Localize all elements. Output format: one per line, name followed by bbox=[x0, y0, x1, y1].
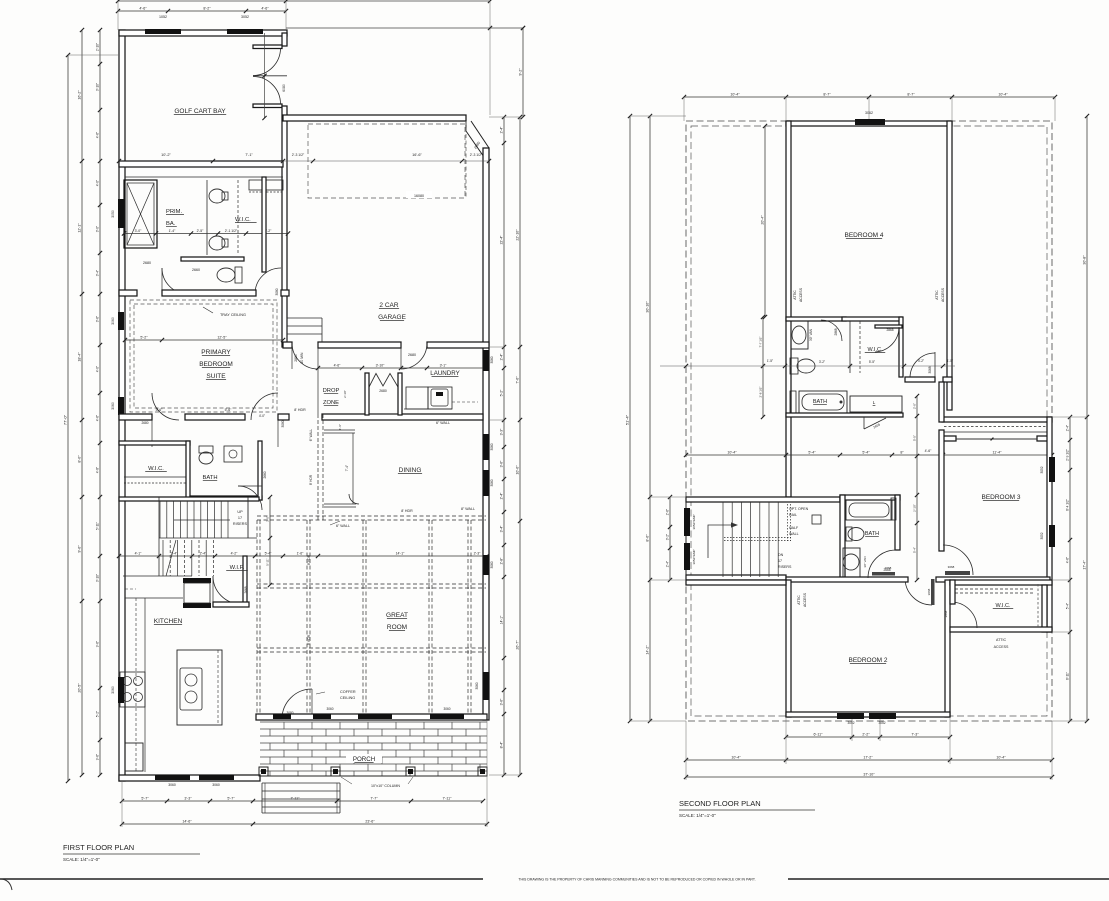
svg-text:10'-2": 10'-2" bbox=[161, 153, 171, 157]
svg-text:8' HDR: 8' HDR bbox=[401, 509, 413, 513]
svg-text:26'-7": 26'-7" bbox=[516, 640, 520, 650]
svg-text:22'-4": 22'-4" bbox=[500, 235, 504, 244]
svg-text:7'-11": 7'-11" bbox=[291, 797, 301, 801]
svg-text:KITCHEN: KITCHEN bbox=[154, 618, 183, 625]
svg-text:3080: 3080 bbox=[281, 420, 285, 427]
svg-text:30'-10": 30'-10" bbox=[646, 301, 650, 313]
svg-text:16080: 16080 bbox=[414, 194, 424, 198]
svg-text:3'-2": 3'-2" bbox=[666, 534, 670, 540]
svg-text:3050: 3050 bbox=[111, 210, 115, 218]
svg-text:W.I.C.: W.I.C. bbox=[148, 466, 164, 472]
svg-text:3080: 3080 bbox=[275, 288, 279, 295]
svg-text:3052: 3052 bbox=[847, 721, 854, 725]
svg-text:W.I.C.: W.I.C. bbox=[996, 603, 1011, 609]
svg-text:3'-3": 3'-3" bbox=[500, 428, 504, 436]
svg-text:4'-6": 4'-6" bbox=[96, 132, 100, 138]
svg-text:ACCESS: ACCESS bbox=[994, 645, 1009, 649]
svg-text:5'-5": 5'-5" bbox=[869, 360, 875, 364]
svg-text:DINING: DINING bbox=[399, 467, 422, 474]
svg-text:RISERS: RISERS bbox=[778, 565, 792, 569]
svg-text:5'-4": 5'-4" bbox=[265, 552, 273, 556]
svg-text:37'-10": 37'-10" bbox=[863, 773, 875, 777]
svg-text:GARAGE: GARAGE bbox=[378, 314, 406, 321]
svg-text:7'-6": 7'-6" bbox=[516, 376, 520, 384]
svg-text:8' HDR: 8' HDR bbox=[309, 474, 313, 485]
svg-text:10'-4": 10'-4" bbox=[731, 756, 741, 760]
svg-text:6'-11": 6'-11" bbox=[814, 733, 824, 737]
svg-text:30" VAN: 30" VAN bbox=[809, 328, 813, 341]
svg-text:3052TEMP: 3052TEMP bbox=[692, 514, 696, 529]
svg-text:8'-4 1/2": 8'-4 1/2" bbox=[1066, 499, 1070, 511]
svg-text:2'-8": 2'-8" bbox=[500, 557, 504, 565]
svg-text:5'-2": 5'-2" bbox=[500, 389, 504, 397]
svg-text:2660: 2660 bbox=[192, 268, 200, 272]
svg-text:ATTIC: ATTIC bbox=[793, 290, 797, 300]
svg-text:WALL: WALL bbox=[789, 532, 799, 536]
svg-text:9'-6": 9'-6" bbox=[96, 754, 100, 760]
svg-text:ATTIC: ATTIC bbox=[797, 595, 801, 605]
svg-text:8'-4": 8'-4" bbox=[500, 741, 504, 749]
svg-text:PRIM.: PRIM. bbox=[166, 209, 182, 215]
svg-text:2680: 2680 bbox=[141, 421, 148, 425]
svg-text:UP: UP bbox=[237, 510, 243, 514]
svg-text:BA.: BA. bbox=[166, 221, 176, 227]
svg-text:SUITE: SUITE bbox=[206, 373, 226, 380]
svg-text:GREAT: GREAT bbox=[386, 612, 408, 619]
svg-text:17: 17 bbox=[238, 516, 242, 520]
svg-text:3060: 3060 bbox=[212, 783, 220, 787]
svg-text:BATH: BATH bbox=[202, 475, 217, 481]
svg-text:3052: 3052 bbox=[1040, 466, 1044, 473]
svg-text:14'-6": 14'-6" bbox=[182, 820, 192, 824]
svg-text:10'-4": 10'-4" bbox=[996, 756, 1006, 760]
svg-text:4'-1": 4'-1" bbox=[135, 552, 143, 556]
svg-text:ACCESS: ACCESS bbox=[803, 592, 807, 607]
svg-text:8' HDR: 8' HDR bbox=[307, 634, 311, 645]
svg-text:23'-6": 23'-6" bbox=[365, 820, 375, 824]
svg-text:DROP: DROP bbox=[323, 388, 340, 394]
svg-text:4'-6": 4'-6" bbox=[261, 7, 269, 11]
svg-text:4'-0": 4'-0" bbox=[96, 366, 100, 372]
svg-text:3052: 3052 bbox=[878, 721, 885, 725]
svg-text:2'-4": 2'-4" bbox=[500, 353, 504, 361]
svg-text:7'-1": 7'-1" bbox=[245, 153, 253, 157]
svg-text:7'-7 1/2": 7'-7 1/2" bbox=[759, 337, 763, 348]
svg-text:3'-0": 3'-0" bbox=[135, 229, 143, 233]
svg-text:3068: 3068 bbox=[927, 588, 931, 595]
svg-text:5'-4": 5'-4" bbox=[862, 451, 870, 455]
svg-text:5'-11": 5'-11" bbox=[96, 522, 100, 530]
svg-text:3'-4": 3'-4" bbox=[500, 525, 504, 533]
svg-text:ACCESS: ACCESS bbox=[799, 287, 803, 302]
svg-text:10'-4": 10'-4" bbox=[730, 93, 740, 97]
svg-text:17'-2": 17'-2" bbox=[863, 756, 873, 760]
svg-text:12'-5": 12'-5" bbox=[217, 336, 227, 340]
svg-text:2680: 2680 bbox=[408, 353, 416, 357]
svg-text:RAIL: RAIL bbox=[789, 513, 797, 517]
svg-text:3052: 3052 bbox=[1040, 532, 1044, 539]
svg-text:BEDROOM 4: BEDROOM 4 bbox=[844, 232, 883, 239]
svg-text:8'-7": 8'-7" bbox=[907, 93, 915, 97]
svg-text:3'-4": 3'-4" bbox=[96, 270, 100, 276]
svg-text:77'-0": 77'-0" bbox=[63, 414, 68, 425]
svg-text:5'-7": 5'-7" bbox=[227, 797, 235, 801]
svg-text:SCALE: 1/4"=1'-0": SCALE: 1/4"=1'-0" bbox=[679, 813, 716, 818]
svg-text:5'-2": 5'-2" bbox=[140, 336, 148, 340]
svg-text:5'-11": 5'-11" bbox=[266, 558, 270, 565]
svg-text:4'-6": 4'-6" bbox=[1066, 557, 1070, 563]
svg-text:7'-3": 7'-3" bbox=[911, 733, 919, 737]
svg-text:3060: 3060 bbox=[490, 356, 494, 363]
svg-text:9'-2": 9'-2" bbox=[519, 68, 523, 76]
svg-text:3'-3": 3'-3" bbox=[184, 797, 192, 801]
svg-text:2'-6": 2'-6" bbox=[666, 509, 670, 515]
svg-text:8'-0": 8'-0" bbox=[78, 455, 82, 463]
svg-text:GOLF CART BAY: GOLF CART BAY bbox=[174, 108, 226, 115]
svg-text:3060: 3060 bbox=[111, 402, 115, 410]
svg-text:1'-4": 1'-4" bbox=[169, 229, 177, 233]
svg-text:PRIMARY: PRIMARY bbox=[201, 349, 231, 356]
svg-text:30'-8": 30'-8" bbox=[1083, 255, 1087, 265]
svg-text:17'-4": 17'-4" bbox=[1083, 560, 1087, 570]
svg-text:3'-10": 3'-10" bbox=[96, 574, 100, 582]
svg-text:4'-0": 4'-0" bbox=[259, 414, 265, 418]
svg-text:5'-5": 5'-5" bbox=[913, 435, 917, 441]
svg-text:HALF: HALF bbox=[789, 526, 799, 530]
svg-text:7'-7": 7'-7" bbox=[370, 797, 378, 801]
svg-text:BEDROOM: BEDROOM bbox=[199, 361, 233, 368]
svg-text:2868: 2868 bbox=[944, 610, 948, 617]
svg-text:5'-4": 5'-4" bbox=[1066, 603, 1070, 609]
svg-text:4'-6": 4'-6" bbox=[96, 415, 100, 421]
svg-text:2668: 2668 bbox=[885, 566, 892, 570]
svg-text:9'-6": 9'-6" bbox=[78, 545, 82, 553]
svg-text:3060: 3060 bbox=[490, 479, 494, 486]
svg-text:3'-1": 3'-1" bbox=[440, 364, 448, 368]
svg-text:ZONE: ZONE bbox=[323, 400, 339, 406]
svg-text:RISERS: RISERS bbox=[233, 522, 248, 526]
svg-text:2'-4": 2'-4" bbox=[666, 561, 670, 567]
svg-text:3'-2": 3'-2" bbox=[819, 360, 825, 364]
svg-text:3060: 3060 bbox=[168, 783, 176, 787]
svg-text:2'-2": 2'-2" bbox=[862, 733, 870, 737]
svg-text:DN: DN bbox=[778, 553, 784, 557]
svg-text:3052TEMP: 3052TEMP bbox=[692, 549, 696, 564]
svg-text:1'-6": 1'-6" bbox=[338, 424, 342, 430]
svg-text:2868: 2868 bbox=[834, 328, 838, 335]
svg-text:7'-4": 7'-4" bbox=[345, 465, 349, 471]
svg-text:30" VAN: 30" VAN bbox=[863, 556, 867, 567]
svg-text:2'-8 1/2": 2'-8 1/2" bbox=[759, 387, 763, 398]
svg-text:3'-10": 3'-10" bbox=[96, 83, 100, 91]
svg-text:2'-10": 2'-10" bbox=[913, 504, 917, 512]
svg-text:3'-0": 3'-0" bbox=[266, 516, 270, 522]
svg-text:1'-5": 1'-5" bbox=[947, 359, 953, 363]
svg-text:CEILING: CEILING bbox=[340, 696, 355, 700]
svg-text:OPT. OPEN: OPT. OPEN bbox=[789, 507, 809, 511]
svg-text:2'-3 1/2": 2'-3 1/2" bbox=[470, 153, 483, 157]
svg-text:20'-5": 20'-5" bbox=[78, 683, 82, 693]
svg-text:6" WALL: 6" WALL bbox=[309, 429, 313, 442]
svg-text:TRAY CEILING: TRAY CEILING bbox=[220, 313, 246, 317]
svg-text:ATTIC: ATTIC bbox=[935, 290, 939, 300]
svg-text:ATTIC: ATTIC bbox=[996, 638, 1007, 642]
svg-text:2'-0": 2'-0" bbox=[913, 403, 917, 409]
svg-text:BEDROOM 2: BEDROOM 2 bbox=[848, 657, 887, 664]
svg-text:5'-7": 5'-7" bbox=[141, 797, 149, 801]
svg-text:2'-3 1/2": 2'-3 1/2" bbox=[292, 153, 305, 157]
svg-text:3'-6": 3'-6" bbox=[500, 460, 504, 468]
svg-text:SECOND FLOOR PLAN: SECOND FLOOR PLAN bbox=[679, 799, 761, 808]
svg-text:2668: 2668 bbox=[244, 586, 248, 593]
svg-text:ACCESS: ACCESS bbox=[941, 287, 945, 302]
svg-text:20'-4": 20'-4" bbox=[761, 215, 765, 225]
svg-text:4'-0": 4'-0" bbox=[96, 180, 100, 186]
svg-text:4'-6": 4'-6" bbox=[139, 7, 147, 11]
svg-text:2880: 2880 bbox=[294, 354, 298, 362]
svg-text:W.I.C.: W.I.C. bbox=[868, 347, 883, 353]
svg-text:4'-6": 4'-6" bbox=[334, 364, 342, 368]
svg-text:3060: 3060 bbox=[475, 682, 479, 689]
svg-text:6" WALL: 6" WALL bbox=[436, 421, 450, 425]
svg-text:W.I.P.: W.I.P. bbox=[230, 565, 245, 571]
svg-text:8' HDR: 8' HDR bbox=[294, 408, 306, 412]
svg-text:BATH: BATH bbox=[865, 531, 879, 537]
svg-text:8' HDR: 8' HDR bbox=[307, 554, 311, 565]
svg-text:3'-6": 3'-6" bbox=[500, 698, 504, 706]
svg-text:COFFER: COFFER bbox=[340, 690, 356, 694]
svg-text:8'-11": 8'-11" bbox=[1066, 672, 1070, 680]
svg-text:10'-6": 10'-6" bbox=[516, 465, 520, 475]
svg-text:10"x10" COLUMN: 10"x10" COLUMN bbox=[371, 784, 400, 788]
svg-text:3052: 3052 bbox=[241, 15, 249, 19]
svg-text:10'-4": 10'-4" bbox=[727, 451, 737, 455]
svg-text:8" WALL: 8" WALL bbox=[461, 507, 475, 511]
svg-text:2868: 2868 bbox=[886, 328, 893, 332]
svg-text:18'-4": 18'-4" bbox=[78, 352, 82, 362]
svg-text:2680: 2680 bbox=[379, 389, 387, 393]
svg-text:8'-7": 8'-7" bbox=[823, 93, 831, 97]
svg-text:6080: 6080 bbox=[282, 84, 286, 92]
svg-text:10'-4": 10'-4" bbox=[998, 93, 1008, 97]
svg-text:2'-1 1/2": 2'-1 1/2" bbox=[225, 229, 238, 233]
svg-text:THIS DRAWING IS THE PROPERTY O: THIS DRAWING IS THE PROPERTY OF CHRIS MA… bbox=[518, 878, 755, 882]
svg-text:BEDROOM 3: BEDROOM 3 bbox=[981, 494, 1020, 501]
svg-text:4'-2": 4'-2" bbox=[231, 552, 239, 556]
svg-text:2'-3": 2'-3" bbox=[474, 552, 482, 556]
svg-text:22'-10": 22'-10" bbox=[516, 229, 520, 241]
svg-text:BATH: BATH bbox=[813, 399, 827, 405]
svg-text:5'-2": 5'-2" bbox=[96, 711, 100, 717]
svg-text:3060: 3060 bbox=[111, 686, 115, 694]
svg-text:3060: 3060 bbox=[490, 443, 494, 450]
svg-text:3'-0": 3'-0" bbox=[96, 226, 100, 232]
svg-text:3'-10": 3'-10" bbox=[376, 364, 385, 368]
svg-text:5'-6": 5'-6" bbox=[225, 408, 233, 412]
svg-text:16'-2": 16'-2" bbox=[78, 90, 82, 100]
svg-text:5'-4": 5'-4" bbox=[808, 451, 816, 455]
svg-text:2'-5": 2'-5" bbox=[197, 229, 205, 233]
svg-text:3060: 3060 bbox=[443, 707, 450, 711]
svg-text:20 MIN: 20 MIN bbox=[300, 352, 304, 363]
svg-text:8'-2": 8'-2" bbox=[203, 7, 211, 11]
svg-text:SCALE: 1/4"=1'-0": SCALE: 1/4"=1'-0" bbox=[63, 857, 100, 862]
svg-text:6" WALL: 6" WALL bbox=[336, 524, 350, 528]
svg-text:4'-8": 4'-8" bbox=[96, 467, 100, 473]
svg-text:4'-6": 4'-6" bbox=[925, 449, 933, 453]
svg-text:14'-1": 14'-1" bbox=[396, 552, 405, 556]
svg-text:16'-6": 16'-6" bbox=[412, 153, 422, 157]
svg-text:2'-10": 2'-10" bbox=[96, 43, 100, 51]
svg-text:3068: 3068 bbox=[948, 565, 955, 569]
svg-text:1052: 1052 bbox=[159, 15, 167, 19]
svg-text:51'-4": 51'-4" bbox=[625, 414, 630, 425]
svg-text:ROOM: ROOM bbox=[387, 624, 407, 631]
svg-text:11'-4": 11'-4" bbox=[993, 451, 1003, 455]
svg-text:W.I.C.: W.I.C. bbox=[235, 217, 251, 223]
svg-text:2 CAR: 2 CAR bbox=[379, 302, 398, 309]
svg-text:3060: 3060 bbox=[326, 707, 333, 711]
svg-text:3060: 3060 bbox=[490, 561, 494, 568]
svg-text:1'-6": 1'-6" bbox=[297, 552, 305, 556]
svg-text:17: 17 bbox=[778, 559, 782, 563]
svg-text:2'-4": 2'-4" bbox=[500, 126, 504, 134]
svg-text:9'-6": 9'-6" bbox=[96, 641, 100, 647]
svg-text:PORCH: PORCH bbox=[353, 756, 375, 763]
svg-text:2660: 2660 bbox=[263, 471, 267, 478]
svg-text:8'-6": 8'-6" bbox=[646, 534, 650, 542]
svg-text:LAUNDRY: LAUNDRY bbox=[430, 370, 459, 377]
svg-text:2'-9 1/2": 2'-9 1/2" bbox=[1066, 449, 1070, 461]
svg-text:4'-2": 4'-2" bbox=[918, 359, 924, 363]
svg-text:3068: 3068 bbox=[928, 366, 932, 373]
svg-text:3'-6": 3'-6" bbox=[96, 316, 100, 322]
svg-text:2'-10": 2'-10" bbox=[343, 390, 347, 398]
svg-text:5'-4": 5'-4" bbox=[913, 547, 917, 553]
svg-text:5'-6": 5'-6" bbox=[156, 408, 164, 412]
svg-text:FIRST FLOOR PLAN: FIRST FLOOR PLAN bbox=[63, 843, 134, 852]
svg-text:2'-4": 2'-4" bbox=[1066, 425, 1070, 431]
svg-text:14'-2": 14'-2" bbox=[646, 645, 650, 655]
svg-text:2'-4": 2'-4" bbox=[500, 492, 504, 500]
svg-text:2680: 2680 bbox=[143, 261, 151, 265]
svg-text:7'-11": 7'-11" bbox=[443, 797, 453, 801]
svg-text:3060: 3060 bbox=[111, 317, 115, 325]
svg-text:14'-1": 14'-1" bbox=[500, 615, 504, 624]
svg-text:1'-5": 1'-5" bbox=[767, 359, 773, 363]
svg-text:12'-1": 12'-1" bbox=[78, 223, 82, 233]
